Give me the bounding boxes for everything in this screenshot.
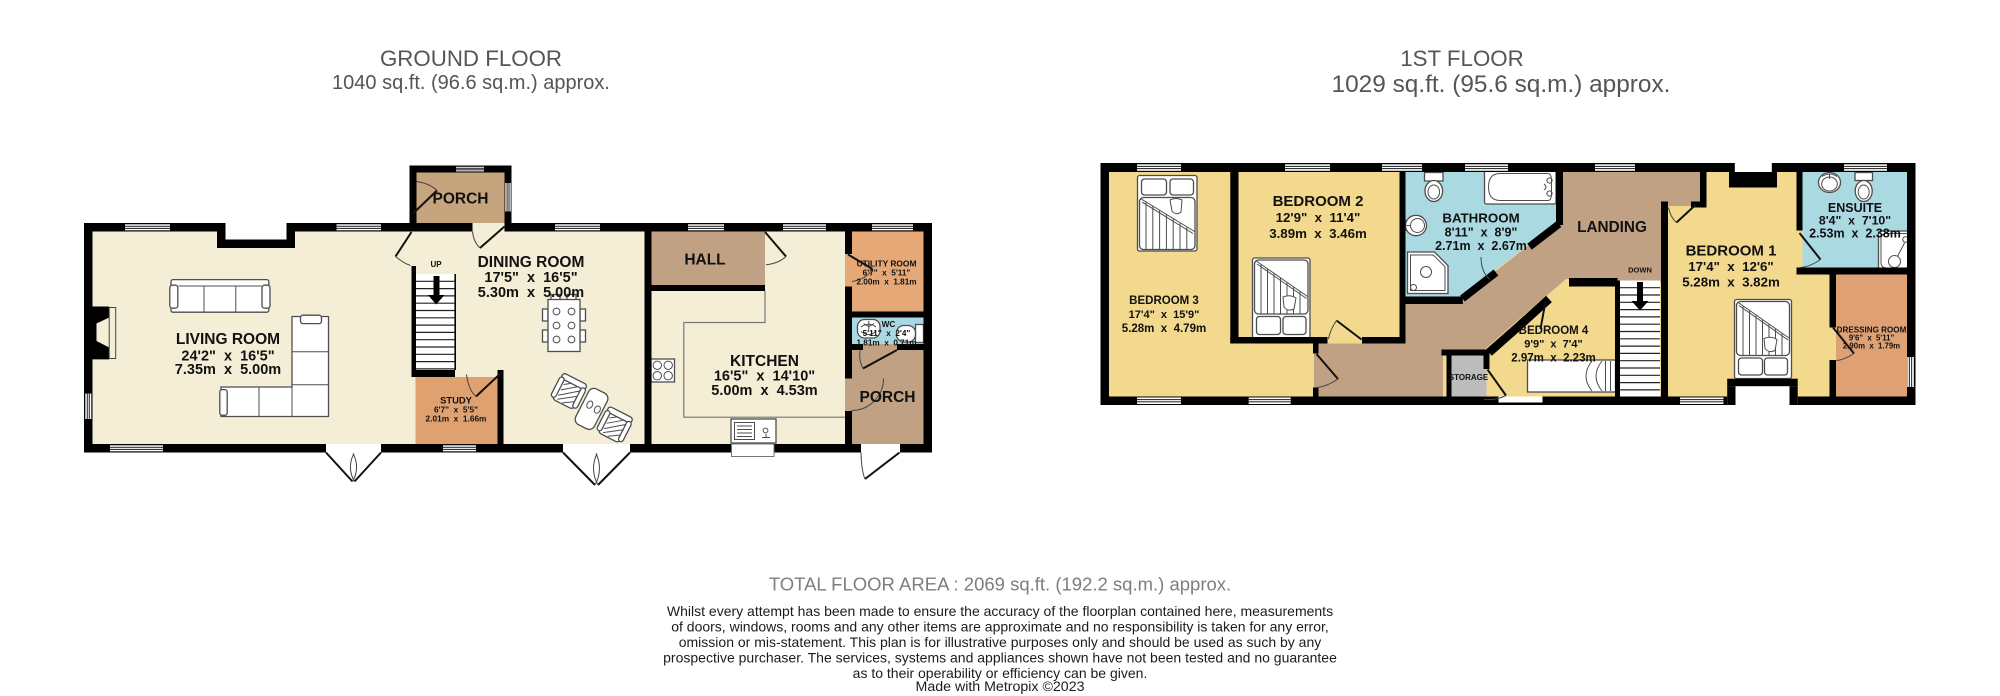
svg-text:2.00m x 1.81m: 2.00m x 1.81m [856, 278, 916, 287]
svg-text:2.71m x 2.67m: 2.71m x 2.67m [1435, 239, 1527, 253]
svg-text:KITCHEN: KITCHEN [730, 353, 799, 370]
svg-text:17'4" x 15'9": 17'4" x 15'9" [1129, 309, 1200, 321]
svg-text:BEDROOM 2: BEDROOM 2 [1273, 193, 1364, 210]
svg-text:BATHROOM: BATHROOM [1442, 211, 1519, 226]
svg-text:LANDING: LANDING [1577, 219, 1647, 236]
svg-text:5.30m x 5.00m: 5.30m x 5.00m [478, 285, 584, 301]
svg-text:12'9" x 11'4": 12'9" x 11'4" [1276, 210, 1361, 225]
svg-text:1040 sq.ft. (96.6 sq.m.) appro: 1040 sq.ft. (96.6 sq.m.) approx. [332, 72, 610, 94]
svg-text:17'5" x 16'5": 17'5" x 16'5" [484, 270, 577, 286]
svg-text:Made with Metropix ©2023: Made with Metropix ©2023 [916, 679, 1085, 695]
svg-text:1029 sq.ft. (95.6 sq.m.) appro: 1029 sq.ft. (95.6 sq.m.) approx. [1332, 71, 1671, 98]
svg-text:WC: WC [882, 320, 896, 329]
svg-text:9'9" x 7'4": 9'9" x 7'4" [1524, 339, 1582, 351]
svg-text:3.89m x 3.46m: 3.89m x 3.46m [1269, 226, 1367, 241]
svg-text:8'11" x 8'9": 8'11" x 8'9" [1445, 226, 1518, 240]
svg-text:2.53m x 2.38m: 2.53m x 2.38m [1809, 227, 1901, 241]
svg-text:DINING ROOM: DINING ROOM [478, 254, 585, 271]
svg-text:prospective purchaser. The ser: prospective purchaser. The services, sys… [663, 650, 1337, 666]
svg-text:omission or mis-statement. Thi: omission or mis-statement. This plan is … [679, 634, 1322, 650]
svg-text:GROUND FLOOR: GROUND FLOOR [380, 46, 562, 71]
svg-text:5.28m x 3.82m: 5.28m x 3.82m [1682, 275, 1780, 290]
svg-text:of doors, windows, rooms and a: of doors, windows, rooms and any other i… [671, 619, 1329, 635]
svg-text:2.01m x 1.66m: 2.01m x 1.66m [426, 414, 487, 424]
svg-text:TOTAL FLOOR AREA : 2069 sq.ft.: TOTAL FLOOR AREA : 2069 sq.ft. (192.2 sq… [769, 574, 1231, 595]
svg-text:UTILITY ROOM: UTILITY ROOM [857, 259, 917, 269]
svg-text:2.97m x 2.23m: 2.97m x 2.23m [1511, 353, 1595, 365]
svg-text:BEDROOM 3: BEDROOM 3 [1129, 295, 1199, 307]
svg-text:5'11" x 2'4": 5'11" x 2'4" [863, 329, 911, 338]
svg-text:BEDROOM 1: BEDROOM 1 [1686, 243, 1777, 260]
svg-text:LIVING ROOM: LIVING ROOM [176, 331, 280, 348]
svg-text:PORCH: PORCH [433, 191, 489, 208]
svg-text:6'7" x 5'11": 6'7" x 5'11" [863, 269, 911, 278]
svg-text:8'4" x 7'10": 8'4" x 7'10" [1819, 214, 1891, 228]
svg-text:UP: UP [430, 260, 442, 269]
svg-text:Whilst every attempt has been: Whilst every attempt has been made to en… [667, 603, 1333, 619]
svg-text:7.35m x 5.00m: 7.35m x 5.00m [175, 362, 281, 378]
svg-text:5.00m x 4.53m: 5.00m x 4.53m [711, 383, 817, 399]
svg-text:BEDROOM 4: BEDROOM 4 [1519, 325, 1589, 337]
svg-text:HALL: HALL [684, 252, 725, 269]
svg-text:17'4" x 12'6": 17'4" x 12'6" [1688, 259, 1773, 274]
svg-text:DOWN: DOWN [1628, 266, 1652, 275]
svg-text:STORAGE: STORAGE [1449, 373, 1489, 382]
svg-text:5.28m x 4.79m: 5.28m x 4.79m [1122, 323, 1206, 335]
svg-text:2.90m x 1.79m: 2.90m x 1.79m [1843, 342, 1900, 351]
svg-text:1ST FLOOR: 1ST FLOOR [1400, 46, 1524, 71]
svg-text:1.81m x 0.71m: 1.81m x 0.71m [856, 339, 916, 348]
svg-text:PORCH: PORCH [860, 389, 916, 406]
